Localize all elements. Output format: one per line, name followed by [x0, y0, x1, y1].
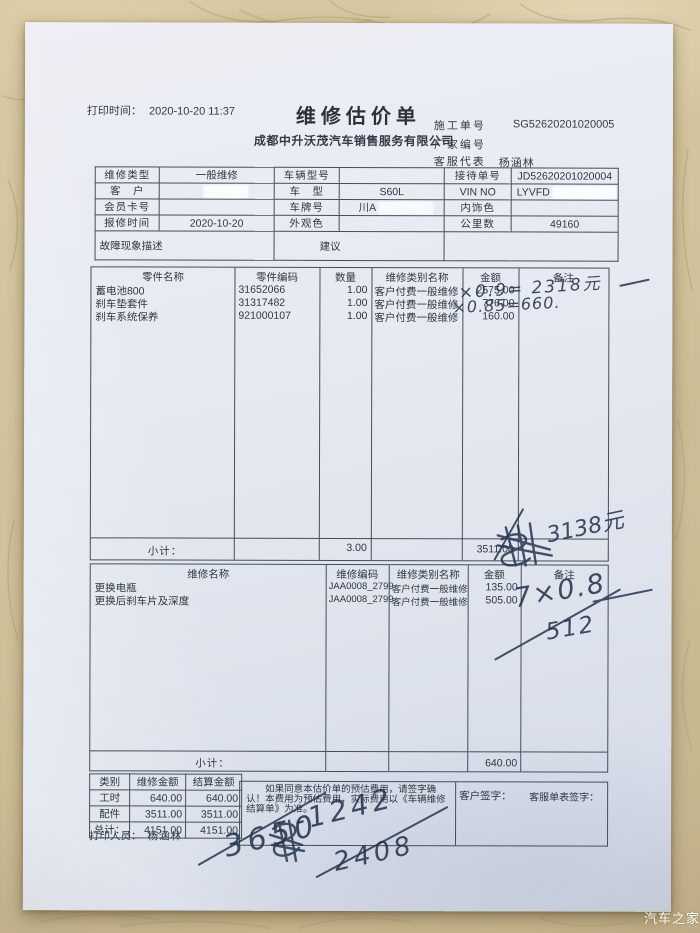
work-order-label: 施工单号 [434, 117, 486, 133]
labor-header-code: 维修编码 [326, 567, 389, 582]
summary-label: 配件 [90, 806, 130, 822]
summary-header-row: 类别 维修金额 结算金额 [90, 774, 242, 790]
signature-cell: 客户签字： 客服单表签字： [455, 782, 607, 845]
printer-name: 杨涵林 [147, 830, 182, 842]
summary-value: 3511.00 [186, 806, 242, 822]
printer-label: 打印人员： [89, 830, 142, 842]
customer-label: 客 户 [95, 183, 159, 199]
vin-partial-value: LYVFD [517, 186, 550, 198]
summary-value: 3511.00 [130, 806, 186, 822]
document-title: 维修估价单 [276, 100, 441, 129]
vin-redaction-box [553, 186, 616, 198]
labor-code: JAA0008_2799 [329, 594, 394, 605]
repair-type-label: 维修类型 [95, 167, 159, 183]
labor-header-amount: 金额 [468, 567, 521, 582]
plate-no-label: 车牌号 [274, 199, 339, 215]
part-code: 921000107 [238, 310, 291, 322]
part-code: 31317482 [238, 297, 285, 309]
parts-row-3: 刹车系统保养 921000107 1.00 客户付费一般维修 160.00 [92, 267, 609, 268]
suggestion-value [444, 232, 618, 261]
info-row-4: 报修时间 2020-10-20 外观色 公里数 49160 [95, 215, 618, 232]
parts-row-1: 蓄电池800 31652066 1.00 客户付费一般维修 2575.00 [92, 267, 609, 268]
labor-subtotal-amount: 640.00 [437, 757, 517, 769]
reception-no-label: 接待单号 [444, 168, 511, 184]
part-code: 31652066 [238, 284, 285, 296]
info-row-5: 故障现象描述 建议 [95, 231, 618, 261]
part-qty: 1.00 [319, 297, 367, 309]
repair-type-value: 一般维修 [159, 167, 274, 183]
vehicle-model-value [339, 167, 444, 183]
vehicle-model-label: 车辆型号 [274, 167, 339, 183]
site-watermark: 汽车之家 [644, 908, 700, 927]
mileage-value: 49160 [511, 216, 618, 232]
summary-row-labor: 工时 640.00 640.00 [90, 790, 242, 806]
part-name: 刹车系统保养 [95, 309, 158, 324]
print-time-label: 打印时间： [87, 105, 142, 117]
info-row-2: 客 户 车 型 S60L VIN NO LYVFD [95, 183, 618, 200]
factory-number-label: 厂家编号 [434, 136, 486, 152]
summary-label: 工时 [90, 790, 130, 806]
member-card-label: 会员卡号 [95, 199, 159, 215]
customer-signature-label: 客户签字： [459, 788, 512, 803]
info-row-3: 会员卡号 车牌号 川A 内饰色 [95, 199, 618, 216]
print-time-value: 2020-10-20 11:37 [149, 105, 235, 117]
customer-value-cell [159, 183, 274, 199]
reception-no-value: JD52620201020004 [511, 168, 618, 184]
labor-name: 更换后刹车片及深度 [95, 593, 190, 608]
member-card-value [159, 199, 274, 215]
service-signature-label: 客服单表签字： [529, 788, 599, 803]
summary-header-repair-amount: 维修金额 [130, 774, 186, 790]
labor-code: JAA0008_2799 [329, 581, 394, 592]
summary-header-category: 类别 [90, 774, 130, 790]
labor-amount: 135.00 [438, 581, 518, 593]
vin-value-cell: LYVFD [511, 184, 618, 200]
mileage-label: 公里数 [444, 216, 511, 232]
repair-estimate-sheet: 打印时间： 2020-10-20 11:37 维修估价单 成都中升沃茂汽车销售服… [23, 22, 673, 912]
parts-header-code: 零件编码 [234, 270, 319, 285]
parts-row-2: 刹车垫套件 31317482 1.00 客户付费一般维修 776.00 [92, 267, 609, 268]
summary-row-parts: 配件 3511.00 3511.00 [90, 806, 242, 822]
labor-row-2: 更换后刹车片及深度 JAA0008_2799 客户付费一般维修 505.00 [91, 564, 608, 565]
plate-redaction-box [378, 202, 432, 214]
part-qty: 1.00 [319, 310, 367, 322]
summary-value: 640.00 [130, 790, 186, 806]
parts-subtotal-label: 小计： [148, 543, 183, 558]
labor-row-1: 更换电瓶 JAA0008_2799 客户付费一般维修 135.00 [91, 564, 608, 565]
plate-no-cell: 川A [339, 199, 444, 215]
parts-subtotal-qty: 3.00 [319, 542, 367, 554]
labor-header-category: 维修类别名称 [389, 567, 468, 582]
parts-header-category: 维修类别名称 [371, 270, 462, 285]
exterior-color-value [339, 215, 444, 231]
customer-redaction-box [204, 185, 248, 197]
parts-header-qty: 数量 [319, 270, 371, 285]
printer-line: 打印人员： 杨涵林 [89, 828, 182, 843]
fault-description-label: 故障现象描述 [95, 231, 274, 260]
vin-label: VIN NO [444, 184, 511, 200]
interior-color-value [511, 200, 618, 216]
exterior-color-label: 外观色 [274, 215, 339, 231]
car-type-label: 车 型 [274, 183, 339, 199]
work-order-number: SG52620201020005 [513, 118, 615, 130]
parts-subtotal-amount: 3511.00 [432, 543, 514, 555]
part-qty: 1.00 [319, 284, 367, 296]
labor-amount: 505.00 [438, 594, 518, 606]
suggestion-label: 建议 [274, 231, 444, 260]
report-date-value: 2020-10-20 [159, 215, 274, 231]
car-type-value: S60L [339, 183, 444, 199]
vehicle-info-table: 维修类型 一般维修 车辆型号 接待单号 JD52620201020004 客 户… [95, 166, 619, 261]
plate-partial-value: 川A [359, 200, 377, 215]
labor-subtotal-label: 小计： [195, 756, 230, 771]
info-row-1: 维修类型 一般维修 车辆型号 接待单号 JD52620201020004 [95, 167, 618, 184]
summary-header-settle-amount: 结算金额 [186, 774, 242, 790]
summary-value: 640.00 [186, 790, 242, 806]
print-time-line: 打印时间： 2020-10-20 11:37 [87, 102, 235, 118]
interior-color-label: 内饰色 [444, 200, 511, 216]
report-date-label: 报修时间 [95, 215, 159, 231]
company-name: 成都中升沃茂汽车销售服务有限公司 [254, 132, 454, 150]
